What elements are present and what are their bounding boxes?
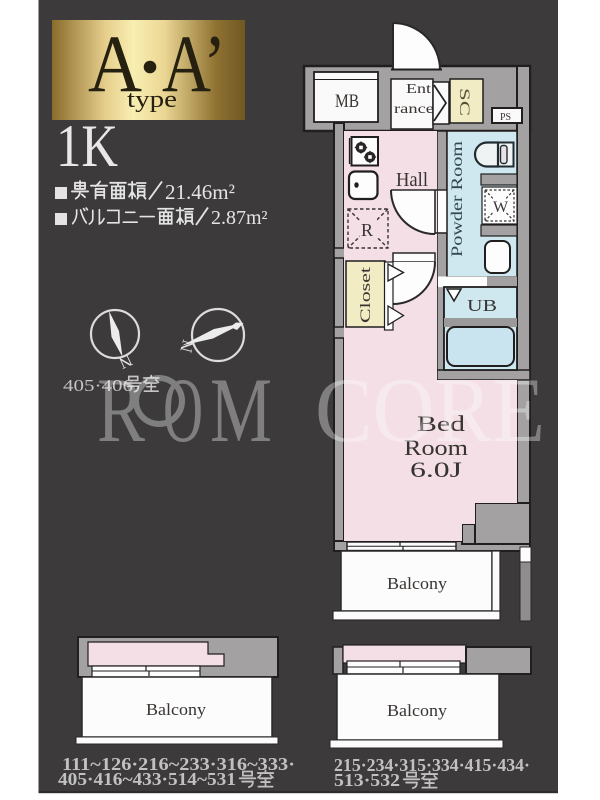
svg-text:SC: SC — [456, 88, 472, 116]
svg-text:rance: rance — [394, 102, 434, 117]
svg-text:CORE: CORE — [315, 359, 545, 461]
svg-text:Hall: Hall — [396, 169, 428, 191]
svg-text:M: M — [210, 359, 272, 461]
svg-text:405·416~433·514~531: 405·416~433·514~531 — [58, 769, 236, 789]
svg-text:1K: 1K — [56, 113, 118, 179]
svg-text:2.87m²: 2.87m² — [211, 207, 268, 229]
svg-text:W: W — [493, 199, 509, 216]
svg-text:21.46m²: 21.46m² — [165, 180, 235, 204]
svg-text:MB: MB — [335, 91, 359, 112]
svg-text:type: type — [127, 87, 177, 113]
svg-text:O: O — [163, 359, 203, 461]
svg-text:PS: PS — [500, 112, 511, 123]
svg-text:Balcony: Balcony — [387, 574, 448, 593]
svg-text:513·532: 513·532 — [334, 770, 400, 790]
svg-text:UB: UB — [467, 296, 497, 315]
svg-text:Closet: Closet — [358, 266, 374, 323]
svg-text:Balcony: Balcony — [146, 700, 207, 719]
svg-text:Powder Room: Powder Room — [449, 140, 466, 257]
svg-text:R: R — [361, 220, 373, 240]
svg-text:Balcony: Balcony — [387, 701, 448, 720]
svg-text:Ent: Ent — [406, 82, 431, 97]
